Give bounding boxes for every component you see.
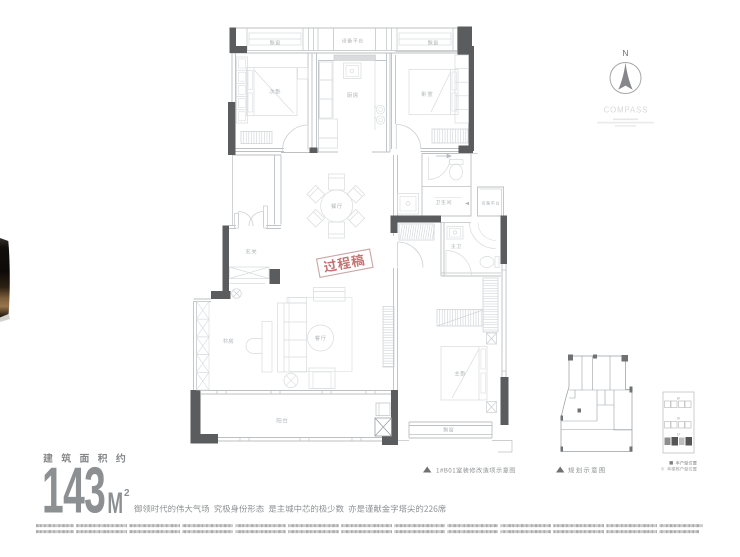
svg-text:2: 2 [124,488,130,499]
svg-text:COMPASS: COMPASS [604,106,649,115]
svg-text:143: 143 [42,454,105,527]
svg-text:N: N [622,48,628,58]
svg-text:M: M [107,487,123,521]
